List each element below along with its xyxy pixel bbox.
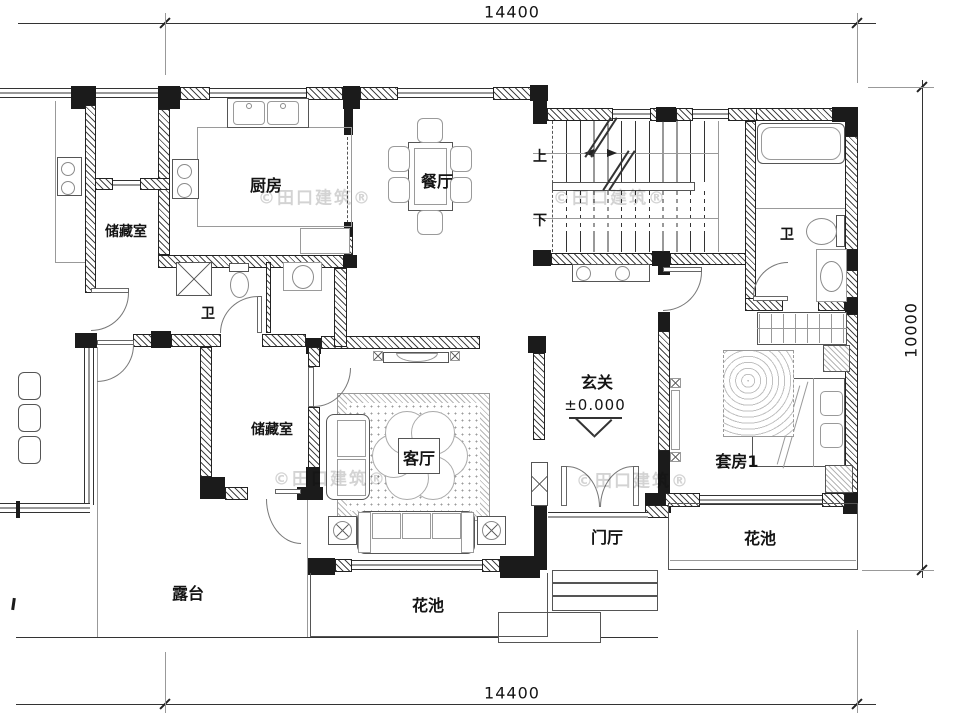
- window-endcap: [16, 501, 20, 518]
- pass-shelf: [113, 180, 140, 188]
- column: [652, 251, 670, 266]
- wall-lamp: [670, 452, 681, 462]
- room-label-dining: 餐厅: [421, 168, 453, 192]
- wall-segment: [306, 87, 343, 100]
- terrace-edge: [307, 500, 308, 637]
- watermark: ©田口建筑®: [273, 465, 387, 490]
- column: [528, 336, 546, 353]
- window: [96, 88, 158, 99]
- room-label-storage-lower: 储藏室: [251, 419, 293, 439]
- dim-extension: [862, 570, 934, 571]
- door-leaf: [275, 489, 301, 494]
- shower: [176, 262, 212, 296]
- plant-stand: [823, 345, 850, 372]
- dining-chair: [417, 210, 443, 235]
- terrace-edge: [97, 347, 98, 637]
- column: [533, 98, 547, 124]
- plant-stand: [825, 465, 853, 493]
- loveseat-cushion: [337, 420, 366, 457]
- room-label-flower-right: 花池: [744, 525, 776, 549]
- wall-segment: [133, 334, 153, 347]
- bedroom-rug: [723, 350, 794, 437]
- flower-bed-inner-line: [670, 560, 856, 561]
- room-label-flower-bottom: 花池: [412, 592, 444, 616]
- wall-segment: [670, 253, 746, 265]
- step: [552, 596, 658, 611]
- table-lamp: [333, 521, 352, 540]
- burner: [177, 164, 192, 179]
- wall-segment: [171, 334, 221, 347]
- room-label-bath-small: 卫: [201, 303, 215, 323]
- column: [656, 107, 676, 122]
- column: [343, 86, 360, 109]
- stair-label-up: 上: [533, 146, 547, 166]
- console-vase: [576, 266, 591, 281]
- door-swing-arc: [663, 272, 702, 311]
- column: [151, 331, 171, 348]
- sofa-cushion: [402, 513, 431, 539]
- wall-segment: [334, 268, 347, 347]
- kitchen-cabinet: [300, 228, 350, 254]
- wall-segment: [745, 121, 756, 302]
- wall-segment: [493, 87, 533, 100]
- wardrobe-rail: [757, 328, 847, 329]
- wall-segment: [533, 353, 545, 440]
- dining-chair: [417, 118, 443, 143]
- step: [552, 583, 658, 596]
- wall-segment: [140, 178, 170, 190]
- wall-segment: [756, 108, 834, 121]
- door-swing-arc: [220, 296, 258, 333]
- room-label-storage-top: 储藏室: [105, 221, 147, 241]
- column-marker: [531, 462, 548, 506]
- column: [533, 250, 551, 266]
- window: [0, 503, 90, 516]
- door-swing-arc: [753, 262, 788, 297]
- dining-chair: [450, 146, 472, 172]
- room-label-foyer: 玄关: [581, 369, 613, 393]
- console-vase: [615, 266, 630, 281]
- wall-segment: [482, 559, 500, 572]
- column: [75, 333, 97, 348]
- wall-segment: [676, 108, 693, 121]
- room-label-living: 客厅: [403, 445, 435, 469]
- toilet-bowl: [806, 218, 837, 245]
- stair-label-down: 下: [533, 210, 547, 230]
- wall-segment: [335, 559, 352, 572]
- dim-line-top: [18, 23, 876, 24]
- toilet-bowl: [230, 272, 249, 298]
- dim-line-right: [922, 80, 923, 578]
- dim-extension: [165, 13, 166, 75]
- faucet: [246, 103, 252, 109]
- watermark: ©田口建筑®: [258, 184, 372, 209]
- wash-basin: [292, 265, 314, 289]
- mirror: [671, 390, 680, 450]
- wall-segment: [200, 347, 212, 477]
- wash-basin: [820, 261, 843, 292]
- window: [0, 88, 71, 99]
- dining-chair: [388, 177, 410, 203]
- chair: [18, 404, 41, 432]
- sofa-cushion: [372, 513, 401, 539]
- counter-edge: [55, 262, 86, 263]
- dim-extension: [868, 87, 934, 88]
- column: [534, 506, 547, 570]
- watermark: ©田口建筑®: [553, 184, 667, 209]
- wall-segment: [85, 105, 96, 293]
- wall-lamp: [670, 378, 681, 388]
- wall-segment: [180, 87, 210, 100]
- room-label-porch: 门厅: [591, 524, 623, 548]
- column: [658, 312, 670, 331]
- wall-segment: [645, 505, 669, 518]
- wall-segment: [845, 136, 858, 250]
- dim-depth-right: 10000: [902, 302, 921, 358]
- window: [84, 333, 96, 505]
- room-label-bath-suite: 卫: [780, 224, 794, 244]
- level-symbol-triangle: [575, 418, 594, 437]
- blanket-edge: [813, 378, 814, 467]
- stair-arrow: [607, 149, 617, 157]
- floor-plan: 14400 14400 10000: [0, 0, 960, 720]
- chair: [18, 372, 41, 400]
- dim-width-bottom: 14400: [484, 684, 540, 703]
- sofa-arm: [358, 512, 371, 553]
- counter-edge: [55, 101, 56, 263]
- door-swing-arc: [91, 293, 129, 331]
- bath-divider-line: [756, 208, 845, 209]
- sofa-cushion: [432, 513, 461, 539]
- window: [398, 88, 495, 99]
- dim-line-bottom: [16, 704, 876, 705]
- window: [693, 109, 728, 120]
- room-label-terrace: 露台: [169, 580, 207, 604]
- wall-segment: [95, 178, 113, 190]
- step: [552, 570, 658, 583]
- column: [845, 110, 858, 136]
- burner: [61, 162, 75, 176]
- edge-mark: [11, 598, 16, 610]
- watermark: ©田口建筑®: [576, 467, 690, 492]
- speaker: [450, 351, 460, 361]
- pillow: [820, 423, 843, 448]
- column: [343, 255, 357, 268]
- dim-extension: [857, 630, 858, 713]
- threshold: [548, 512, 648, 518]
- wall-segment: [360, 87, 398, 100]
- dim-width-top: 14400: [484, 3, 540, 22]
- room-label-suite: 套房1: [715, 448, 758, 472]
- stair-guide-line: [533, 218, 718, 219]
- dining-chair: [450, 177, 472, 203]
- wall-segment: [266, 262, 271, 333]
- dim-extension: [857, 13, 858, 83]
- toilet-tank: [229, 263, 249, 272]
- window: [352, 560, 482, 571]
- column: [200, 477, 225, 499]
- bathtub-inner: [761, 127, 841, 160]
- speaker: [373, 351, 383, 361]
- wall-segment: [308, 347, 320, 367]
- dim-extension: [165, 652, 166, 713]
- sofa-arm: [461, 512, 474, 553]
- faucet: [280, 103, 286, 109]
- wall-segment: [658, 331, 670, 451]
- burner: [61, 181, 75, 195]
- chair: [18, 436, 41, 464]
- level-symbol-triangle: [593, 419, 612, 438]
- toilet-tank: [836, 215, 845, 247]
- wall-segment: [262, 334, 306, 347]
- dining-chair: [388, 146, 410, 172]
- wall-segment: [547, 108, 613, 121]
- wall-segment: [225, 487, 248, 500]
- foyer-level-value: ±0.000: [564, 396, 626, 414]
- pillow: [820, 391, 843, 416]
- column: [158, 86, 180, 109]
- wall-segment: [308, 407, 320, 469]
- stair-void-edge: [718, 121, 719, 252]
- window: [613, 109, 650, 120]
- table-lamp: [482, 521, 501, 540]
- burner: [177, 183, 192, 198]
